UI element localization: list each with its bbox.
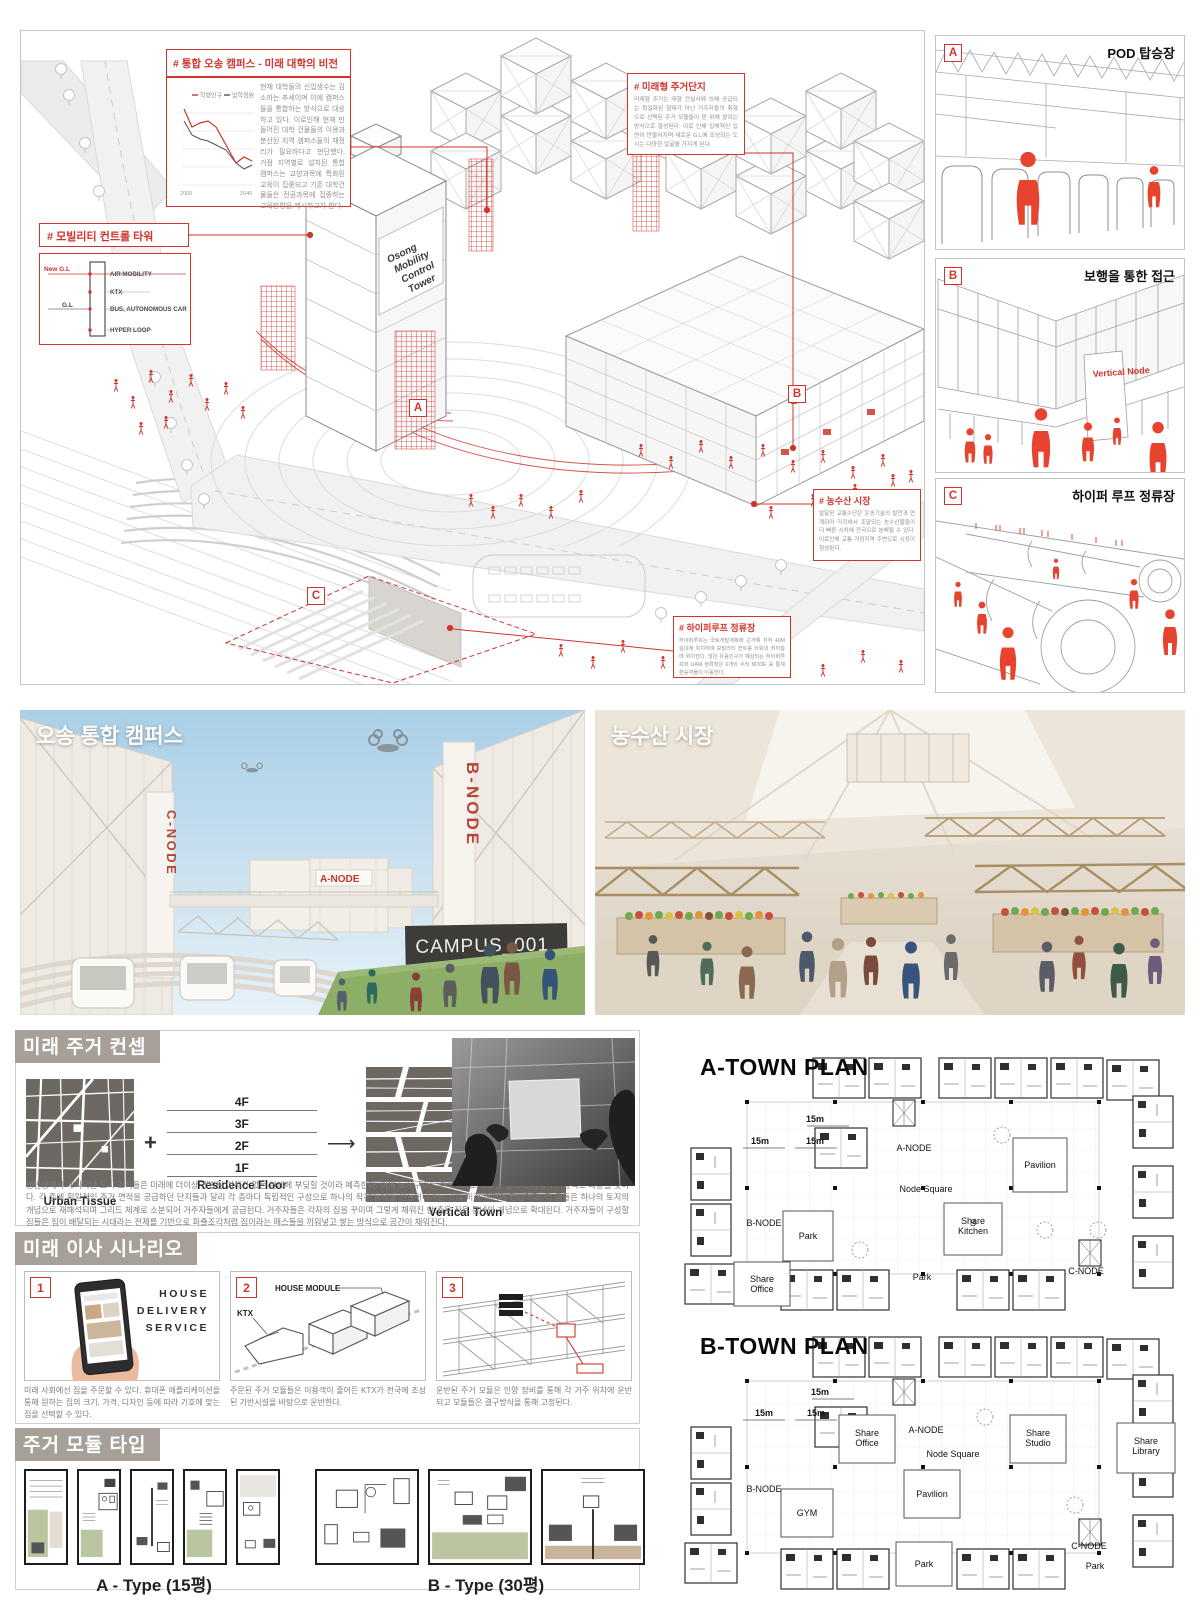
mobility-section-diagram: New G.L G.L AIR MOBILITY KTX BUS, AUTONO… [40,254,190,344]
svg-text:Park: Park [915,1559,934,1569]
b-town-plan: B-TOWN PLAN [655,1315,1190,1600]
legend-dark: 입학정원 [232,92,254,100]
vignette-walk: B 보행을 통한 접근 Vertical Node [935,258,1185,473]
level-ktx: KTX [110,289,123,296]
concept-photo [452,1038,635,1186]
svg-text:GYM: GYM [797,1508,818,1518]
render-campus: C-NODE B-NODE A-NODE [20,710,585,1015]
competition-board: Osong Mobility Control Tower [0,0,1200,1600]
scenario-box-3: 3 [436,1271,632,1381]
callout-campus-body: 현재 대학들의 신입생수는 감소하는 추세이며 이에 캠퍼스들을 통합하는 방식… [260,83,345,201]
callout-housing-body: 미래형 주거는 대형 건설사에 의해 공급되는 획일화된 형태가 아닌 거주자들… [634,96,738,150]
callout-hyperloop-title: # 하이퍼루프 정류장 [679,621,785,634]
module-plan-b2 [428,1469,532,1565]
module-types-section: 주거 모듈 타입 [15,1428,640,1590]
callout-market-body: 발달된 교통수단은 운송기술의 발전과 연계되어 각지에서 조달되는 농수산물들… [819,510,915,553]
house-module-label: HOUSE MODULE [275,1284,341,1293]
module-types-header: 주거 모듈 타입 [15,1428,160,1461]
svg-text:C-NODE: C-NODE [1068,1266,1104,1276]
marker-b: B [788,385,806,403]
hyperloop-zone [226,576,536,683]
enrollment-chart: 학령인구 입학정원 2000 2040 [172,83,256,201]
scenario-header: 미래 이사 시나리오 [15,1232,197,1265]
platform-people-row [976,523,1122,546]
ktx-module-diagram: HOUSE MODULE KTX [231,1272,425,1380]
module-plan-b3 [541,1469,645,1565]
callout-mobility-diagram-box: New G.L G.L AIR MOBILITY KTX BUS, AUTONO… [39,253,191,345]
floor-2f: 2F [167,1139,317,1153]
render-market: 농수산 시장 [595,710,1185,1015]
callout-mobility-title: # 모빌리티 컨트롤 타워 [40,224,188,248]
vignette-pod-badge: A [944,44,962,62]
render-campus-title: 오송 통합 캠퍼스 [36,720,183,750]
svg-text:Node Square: Node Square [899,1184,952,1194]
vignette-hyperloop-badge: C [944,487,962,505]
cnode-sign: C-NODE [164,810,179,876]
marker-a: A [409,399,427,417]
new-gl-label: New G.L [44,266,70,273]
scenario-box-1: 1 HOUSE DELIVERY SERVICE [24,1271,220,1381]
svg-text:Park: Park [799,1231,818,1241]
level-hyperloop: HYPER LOOP [110,327,151,334]
module-plan-a4 [183,1469,227,1565]
market-building [566,256,924,506]
callout-market-title: # 농수산 시장 [819,494,915,507]
svg-text:B-NODE: B-NODE [746,1218,781,1228]
floor-3f: 3F [167,1117,317,1131]
sky-bridge [847,734,969,782]
svg-text:C-NODE: C-NODE [1071,1541,1107,1551]
callout-hyperloop-body: 하이퍼루프는 국토개발계획에 근거해 지하 40M 깊이에 위치하며 모빌리티 … [679,637,785,677]
svg-text:15m: 15m [806,1136,824,1146]
ktx-label: KTX [237,1309,254,1318]
a-town-plan-title: A-TOWN PLAN [700,1054,869,1081]
svg-text:A-NODE: A-NODE [908,1425,943,1435]
scenario-3-badge: 3 [442,1277,463,1298]
svg-text:B-NODE: B-NODE [746,1484,781,1494]
hyperloop-sketch [936,479,1184,692]
callout-market: # 농수산 시장 발달된 교통수단은 운송기술의 발전과 연계되어 각지에서 조… [813,489,921,561]
isometric-site-drawing: Osong Mobility Control Tower [21,31,924,684]
vignette-pod: A POD 탑승장 [935,35,1185,250]
a-town-plan: A-TOWN PLAN [655,1040,1190,1312]
vignette-walk-badge: B [944,267,962,285]
level-bus: BUS, AUTONOMOUS CAR [110,306,187,313]
residence-floor-diagram: 4F 3F 2F 1F Residence Floor [167,1095,317,1192]
svg-text:ShareLibrary: ShareLibrary [1132,1436,1160,1456]
svg-text:ShareOffice: ShareOffice [855,1428,879,1448]
callout-campus-content: 학령인구 입학정원 2000 2040 현재 대학들의 신입생수는 감소하는 추… [166,77,351,207]
floor-4f: 4F [167,1095,317,1109]
anode-sign: A-NODE [320,874,360,885]
stacked-module [499,1294,523,1316]
a-type-label: A - Type (15평) [54,1571,254,1596]
legend-red: 학령인구 [200,92,223,100]
scenario-section: 미래 이사 시나리오 1 HOUSE DELIVERY SERVICE 미래 사… [15,1232,640,1424]
crane-red [525,1312,603,1373]
gl-label: G.L [62,302,73,309]
pod-station-sketch [936,36,1184,249]
red-scaffold [395,331,435,449]
arrow-glyph: ⟶ [327,1131,356,1156]
svg-text:ShareStudio: ShareStudio [1025,1428,1051,1448]
module-plan-a2 [77,1469,121,1565]
svg-text:Node Square: Node Square [926,1449,979,1459]
svg-text:ShareOffice: ShareOffice [750,1274,774,1294]
vignette-pod-title: POD 탑승장 [1107,43,1175,62]
svg-text:15m: 15m [755,1408,773,1418]
market-render-art [595,710,1185,1015]
x-tick-end: 2040 [240,191,252,197]
svg-text:15m: 15m [807,1408,825,1418]
callout-housing: # 미래형 주거단지 미래형 주거는 대형 건설사에 의해 공급되는 획일화된 … [627,73,745,155]
scenario-caption-3: 운반된 주거 모듈은 인양 장비를 통해 각 거주 위치에 운반되고 모듈들은 … [436,1385,632,1409]
vignette-hyperloop-title: 하이퍼 루프 정류장 [1072,486,1175,505]
concept-header: 미래 주거 컨셉 [15,1030,160,1063]
share-kitchen-line2: Kitchen [958,1226,988,1236]
callout-mobility-title-box: # 모빌리티 컨트롤 타워 [39,223,189,247]
svg-text:Park: Park [913,1272,932,1282]
pods [942,166,1174,244]
scenario-caption-1: 미래 사회에선 집을 주문할 수 있다. 휴대폰 애플리케이션을 통해 원하는 … [24,1385,220,1421]
svg-text:15m: 15m [806,1114,824,1124]
callout-campus-title: # 통합 오송 캠퍼스 - 미래 대학의 비전 [167,50,350,77]
marker-c: C [307,587,325,605]
vignette-walk-title: 보행을 통한 접근 [1084,266,1175,285]
svg-text:15m: 15m [811,1387,829,1397]
svg-text:ShareKitchen: ShareKitchen [958,1216,988,1236]
b-town-plan-title: B-TOWN PLAN [700,1333,869,1360]
campus-render-art: C-NODE B-NODE A-NODE [20,710,585,1015]
render-market-title: 농수산 시장 [611,720,713,750]
module-plan-a3 [130,1469,174,1565]
scenario-caption-2: 주문된 주거 모듈들은 이용객이 줄어든 KTX가 전국에 조성된 기반시설을 … [230,1385,426,1409]
plus-sign: + [144,1130,157,1156]
floor-1f: 1F [167,1161,317,1175]
callout-hyperloop: # 하이퍼루프 정류장 하이퍼루프는 국토개발계획에 근거해 지하 40M 깊이… [673,616,791,678]
house-delivery-service-label: HOUSE DELIVERY SERVICE [135,1286,209,1336]
red-scaffold [261,286,295,370]
module-plan-a1 [24,1469,68,1565]
walk-access-sketch: Vertical Node [936,259,1184,472]
isometric-site-panel: Osong Mobility Control Tower [20,30,925,685]
vignette-hyperloop: C 하이퍼 루프 정류장 [935,478,1185,693]
concept-body: 평면상에서 계획되던 도시 조직들은 미래에 더이상 개발될 여지가 없는 한계… [26,1179,629,1229]
svg-text:A-NODE: A-NODE [896,1143,931,1153]
callout-housing-title: # 미래형 주거단지 [634,79,738,93]
bnode-sign: B-NODE [463,762,482,847]
x-tick-start: 2000 [180,191,192,197]
module-plan-a5 [236,1469,280,1565]
level-air: AIR MOBILITY [110,271,153,278]
module-plan-b1 [315,1469,419,1565]
svg-text:Park: Park [1086,1561,1105,1571]
b-type-label: B - Type (30평) [366,1571,606,1596]
crane-lattice-diagram [437,1272,631,1380]
svg-text:Pavilion: Pavilion [1024,1160,1056,1170]
svg-text:Pavilion: Pavilion [916,1489,948,1499]
scenario-2-badge: 2 [236,1277,257,1298]
svg-text:15m: 15m [751,1136,769,1146]
callout-campus-vision: # 통합 오송 캠퍼스 - 미래 대학의 비전 [166,49,351,77]
red-scaffold-tower [469,159,493,251]
scenario-box-2: 2 HOUSE MODULE KTX [230,1271,426,1381]
